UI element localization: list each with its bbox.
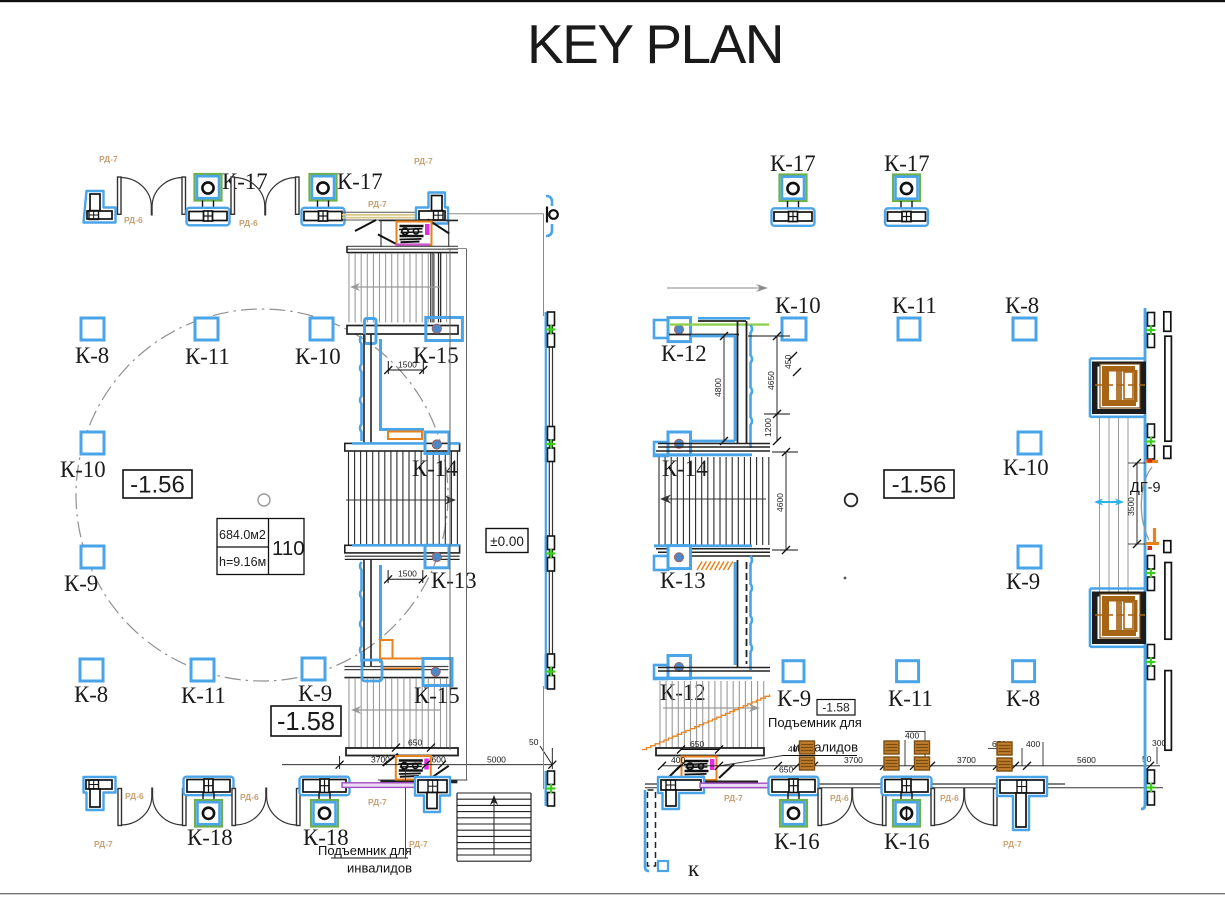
svg-text:400: 400 [671,755,685,765]
svg-text:К-11: К-11 [888,686,933,711]
svg-text:К-17: К-17 [770,151,816,176]
svg-text:К-11: К-11 [185,344,230,369]
svg-text:-1.56: -1.56 [130,472,185,499]
svg-text:К-9: К-9 [298,681,332,706]
svg-text:К-11: К-11 [181,683,226,708]
svg-text:К-10: К-10 [775,293,821,318]
svg-text:РД-7: РД-7 [1003,839,1022,849]
svg-text:650: 650 [779,765,793,775]
svg-text:К-12: К-12 [661,341,707,366]
svg-text:4800: 4800 [713,378,723,397]
svg-text:400: 400 [905,731,919,741]
svg-text:3700: 3700 [957,755,976,765]
svg-text:К-9: К-9 [64,571,98,596]
svg-text:РД-6: РД-6 [240,792,259,802]
svg-text:К-8: К-8 [1005,293,1039,318]
svg-text:К-8: К-8 [75,343,109,368]
svg-text:-1.58: -1.58 [822,701,850,715]
svg-text:3700: 3700 [844,755,863,765]
svg-text:К-18: К-18 [187,825,233,850]
svg-text:684.0м2: 684.0м2 [219,528,266,542]
svg-text:К-17: К-17 [884,151,930,176]
svg-text:50: 50 [1142,754,1152,764]
svg-text:650: 650 [690,739,704,749]
svg-text:РД-6: РД-6 [940,793,959,803]
svg-text:К-18: К-18 [303,825,349,850]
svg-text:К-16: К-16 [774,829,820,854]
svg-text:1500: 1500 [398,569,417,579]
svg-text:К-15: К-15 [413,343,459,368]
svg-text:5000: 5000 [487,755,506,765]
svg-text:К-9: К-9 [777,686,811,711]
svg-text:50: 50 [529,737,539,747]
svg-text:К-12: К-12 [660,680,706,705]
svg-text:К-8: К-8 [1006,686,1040,711]
svg-text:К-9: К-9 [1006,569,1040,594]
svg-text:к: к [688,856,700,881]
svg-text:ДГ-9: ДГ-9 [1130,480,1161,496]
svg-text:±0.00: ±0.00 [490,534,524,549]
svg-text:4600: 4600 [775,493,785,512]
svg-text:600: 600 [432,755,446,765]
svg-text:К-10: К-10 [1003,455,1049,480]
svg-text:К-13: К-13 [660,568,706,593]
svg-text:РД-7: РД-7 [368,797,387,807]
svg-text:РД-6: РД-6 [830,793,849,803]
svg-text:инвалидов: инвалидов [347,861,412,876]
svg-text:-1.56: -1.56 [892,472,947,499]
svg-text:3700: 3700 [371,755,390,765]
svg-text:РД-7: РД-7 [94,839,113,849]
svg-text:РД-7: РД-7 [368,199,387,209]
svg-text:К-13: К-13 [431,568,477,593]
svg-text:1500: 1500 [398,360,417,370]
svg-text:РД-6: РД-6 [125,791,144,801]
svg-text:РД-6: РД-6 [239,218,258,228]
svg-text:650: 650 [408,738,422,748]
svg-text:-1.58: -1.58 [277,708,335,736]
svg-text:К-16: К-16 [884,829,930,854]
svg-text:110: 110 [272,537,305,560]
svg-text:К-10: К-10 [295,344,341,369]
svg-text:РД-7: РД-7 [409,839,428,849]
svg-text:К-17: К-17 [222,169,268,194]
svg-text:3500: 3500 [1126,497,1136,516]
svg-text:РД-7: РД-7 [99,154,118,164]
svg-text:5600: 5600 [1077,755,1096,765]
svg-text:РД-7: РД-7 [414,156,433,166]
svg-text:К-11: К-11 [892,293,937,318]
svg-text:Подъемник для: Подъемник для [768,715,862,730]
svg-text:К-8: К-8 [74,682,108,707]
svg-text:400: 400 [1026,739,1040,749]
svg-text:К-14: К-14 [412,456,458,481]
svg-text:h=9.16м: h=9.16м [219,555,266,569]
svg-text:KEY PLAN: KEY PLAN [527,13,783,75]
svg-text:1200: 1200 [763,418,773,437]
svg-text:4650: 4650 [766,371,776,390]
svg-text:К-17: К-17 [337,169,383,194]
svg-text:К-15: К-15 [414,683,460,708]
svg-text:К-10: К-10 [60,457,106,482]
svg-text:РД-6: РД-6 [124,215,143,225]
svg-text:РД-7: РД-7 [724,793,743,803]
